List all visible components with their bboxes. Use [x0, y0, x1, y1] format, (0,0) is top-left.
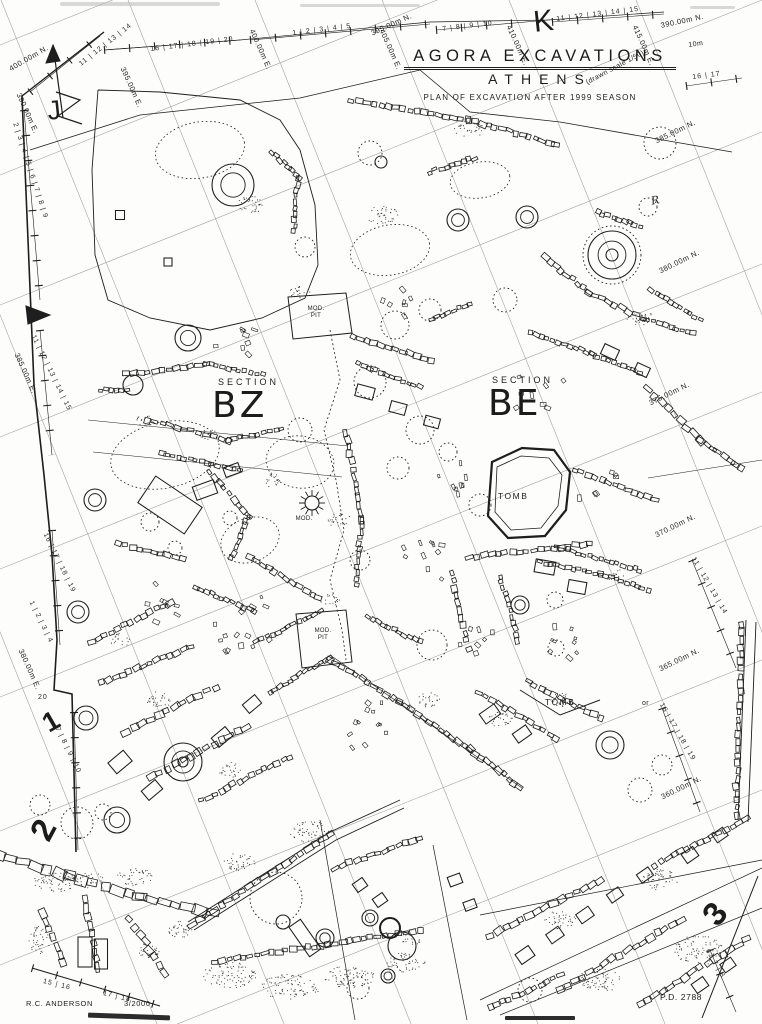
room-outlines: [78, 211, 736, 994]
scan-smudge: [690, 6, 735, 9]
rubble-scatter: [145, 286, 619, 751]
section-be-code: BE: [488, 386, 541, 422]
plan-number: P.D. 2788: [660, 993, 702, 1002]
credit-date: 3/2000: [124, 1000, 151, 1008]
tomb-upper-label: TOMB: [498, 492, 528, 501]
tick-group-left5: 20: [38, 694, 48, 701]
section-bz-code: BZ: [212, 388, 267, 424]
page-title-city: ATHENS: [404, 72, 676, 86]
stipple-texture: [29, 123, 726, 999]
or-annotation: or: [642, 700, 649, 707]
scan-mark: [505, 1016, 575, 1020]
grid-letter-j: J: [46, 97, 62, 125]
tomb-and-pits: [26, 45, 570, 668]
grid-letter-k: K: [532, 6, 555, 38]
ruler-ticks: [24, 14, 742, 1012]
excavation-plan-drawing: [0, 0, 762, 1024]
scan-smudge: [300, 4, 420, 7]
tomb-lower-label: TOMB: [545, 698, 575, 707]
mod-pit-upper-label: MOD. PIT: [303, 306, 329, 320]
credit-author: R.C. ANDERSON: [26, 1000, 93, 1008]
scan-smudge: [60, 2, 220, 6]
mod-pit-lower-label: MOD. PIT: [310, 628, 336, 642]
plan-sheet: AGORA EXCAVATIONS ATHENS PLAN OF EXCAVAT…: [0, 0, 762, 1024]
mod-feature-label: MOD.: [294, 516, 314, 523]
dotted-pits: [30, 115, 676, 1002]
page-subtitle: PLAN OF EXCAVATION AFTER 1999 SEASON: [394, 94, 666, 102]
